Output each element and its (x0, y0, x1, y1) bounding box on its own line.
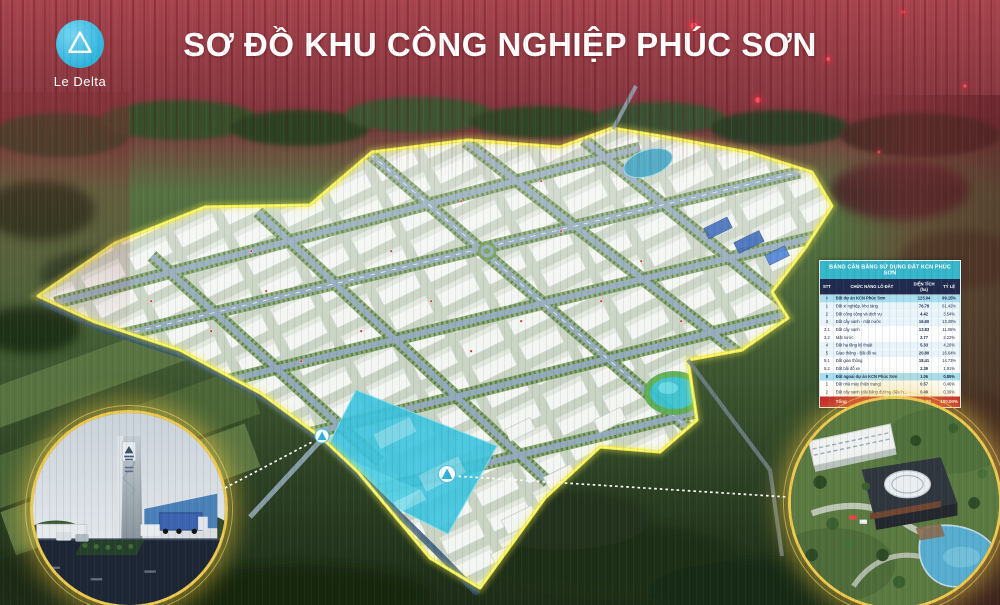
table-row: 3Đất cây xanh - mặt nước16.6013.28% (820, 318, 960, 326)
table-row: 5Giao thông - Bãi đỗ xe20.8016.64% (820, 349, 960, 357)
col-function: CHỨC NĂNG LÔ ĐẤT (834, 279, 910, 295)
table-row: 3.2Mặt nước2.772.22% (820, 334, 960, 342)
cell-ratio: 3.54% (938, 310, 960, 318)
cell-ratio: 0.85% (938, 373, 960, 381)
table-row: 5.1Đất giao thông18.4114.73% (820, 357, 960, 365)
car (849, 515, 856, 519)
cell-label: Đất ngoài dự án KCN Phúc Sơn (834, 373, 910, 381)
page-title: SƠ ĐỒ KHU CÔNG NGHIỆP PHÚC SƠN (0, 26, 1000, 64)
col-stt: STT (820, 279, 834, 295)
cell-stt: 3 (820, 318, 834, 326)
table-row: 1Đất nhà máy (hiện trạng)0.570.46% (820, 381, 960, 389)
cell-stt: 4 (820, 342, 834, 350)
table-row: 1Đất xí nghiệp, kho tàng76.7861.42% (820, 303, 960, 311)
cell-stt: 1 (820, 381, 834, 389)
cell-stt: II (820, 373, 834, 381)
land-use-table-grid: STT CHỨC NĂNG LÔ ĐẤT DIỆN TÍCH (ha) TỶ L… (820, 279, 960, 407)
cell-stt: 2 (820, 389, 834, 397)
car (56, 532, 71, 541)
land-table-body: IĐất dự án KCN Phúc Sơn123.9499.15%1Đất … (820, 295, 960, 407)
cell-area: 123.94 (910, 295, 938, 303)
land-use-table: BẢNG CÂN BẰNG SỬ DỤNG ĐẤT KCN PHÚC SƠN S… (819, 260, 961, 408)
cell-label: Đất bãi đỗ xe (834, 365, 910, 373)
cell-label: Đất cây xanh - mặt nước (834, 318, 910, 326)
admin-building-photo (791, 399, 999, 605)
gate-monument-tower (116, 436, 143, 540)
gate-monument-photo (33, 413, 225, 605)
cell-label: Đất cây xanh (834, 326, 910, 334)
cell-area: 2.77 (910, 334, 938, 342)
cell-area: 13.83 (910, 326, 938, 334)
cell-ratio: 99.15% (938, 295, 960, 303)
land-use-table-title: BẢNG CÂN BẰNG SỬ DỤNG ĐẤT KCN PHÚC SƠN (820, 261, 960, 279)
cell-area: 18.41 (910, 357, 938, 365)
cell-area: 76.78 (910, 303, 938, 311)
cell-ratio: 61.42% (938, 303, 960, 311)
cell-label: Đất công cộng và dịch vụ (834, 310, 910, 318)
cell-area: 1.06 (910, 373, 938, 381)
cell-label: Đất nhà máy (hiện trạng) (834, 381, 910, 389)
cell-label: Mặt nước (834, 334, 910, 342)
car (75, 534, 88, 542)
table-row: 3.1Đất cây xanh13.8311.06% (820, 326, 960, 334)
inset-admin-building (788, 396, 1000, 605)
cell-area: 5.33 (910, 342, 938, 350)
inset-entrance-gate (30, 410, 228, 605)
cell-stt: 3.2 (820, 334, 834, 342)
cell-stt: 2 (820, 310, 834, 318)
col-ratio: TỶ LỆ (938, 279, 960, 295)
cell-ratio: 0.46% (938, 381, 960, 389)
cell-stt: 3.1 (820, 326, 834, 334)
cell-label: Giao thông - Bãi đỗ xe (834, 349, 910, 357)
pond-highlight (658, 382, 678, 394)
cell-stt (820, 396, 834, 407)
cell-stt: 1 (820, 303, 834, 311)
le-delta-logo: Le Delta (50, 20, 110, 89)
le-delta-logo-text: Le Delta (50, 74, 110, 89)
cell-area: 16.60 (910, 318, 938, 326)
table-row: 5.2Đất bãi đỗ xe2.391.91% (820, 365, 960, 373)
cell-stt: 5.2 (820, 365, 834, 373)
van (141, 524, 160, 536)
cell-area: 0.57 (910, 381, 938, 389)
table-row: 2Đất công cộng và dịch vụ4.423.54% (820, 310, 960, 318)
cell-stt: 5.1 (820, 357, 834, 365)
cell-stt: I (820, 295, 834, 303)
cell-ratio: 2.22% (938, 334, 960, 342)
cell-label: Đất xí nghiệp, kho tàng (834, 303, 910, 311)
cell-area: 20.80 (910, 349, 938, 357)
billboard-poster: SƠ ĐỒ KHU CÔNG NGHIỆP PHÚC SƠN Le Delta … (0, 0, 1000, 605)
cell-ratio: 100.00% (938, 396, 960, 407)
table-row: IIĐất ngoài dự án KCN Phúc Sơn1.060.85% (820, 373, 960, 381)
cell-area: 0.49 (910, 389, 938, 397)
cell-ratio: 1.91% (938, 365, 960, 373)
cell-ratio: 0.39% (938, 389, 960, 397)
cell-label: Đất dự án KCN Phúc Sơn (834, 295, 910, 303)
cell-ratio: 16.64% (938, 349, 960, 357)
le-delta-logo-circle (56, 20, 104, 68)
car (860, 520, 867, 524)
cell-ratio: 4.26% (938, 342, 960, 350)
col-area: DIỆN TÍCH (ha) (910, 279, 938, 295)
cell-label: Đất hạ tầng kỹ thuật (834, 342, 910, 350)
table-header-row: STT CHỨC NĂNG LÔ ĐẤT DIỆN TÍCH (ha) TỶ L… (820, 279, 960, 295)
cell-area: 2.39 (910, 365, 938, 373)
cell-ratio: 13.28% (938, 318, 960, 326)
table-row: 4Đất hạ tầng kỹ thuật5.334.26% (820, 342, 960, 350)
cell-label: Đất giao thông (834, 357, 910, 365)
cell-ratio: 14.73% (938, 357, 960, 365)
delta-triangle-icon (63, 28, 97, 60)
table-row: IĐất dự án KCN Phúc Sơn123.9499.15% (820, 295, 960, 303)
cell-stt: 5 (820, 349, 834, 357)
cell-ratio: 11.06% (938, 326, 960, 334)
cell-area: 4.42 (910, 310, 938, 318)
